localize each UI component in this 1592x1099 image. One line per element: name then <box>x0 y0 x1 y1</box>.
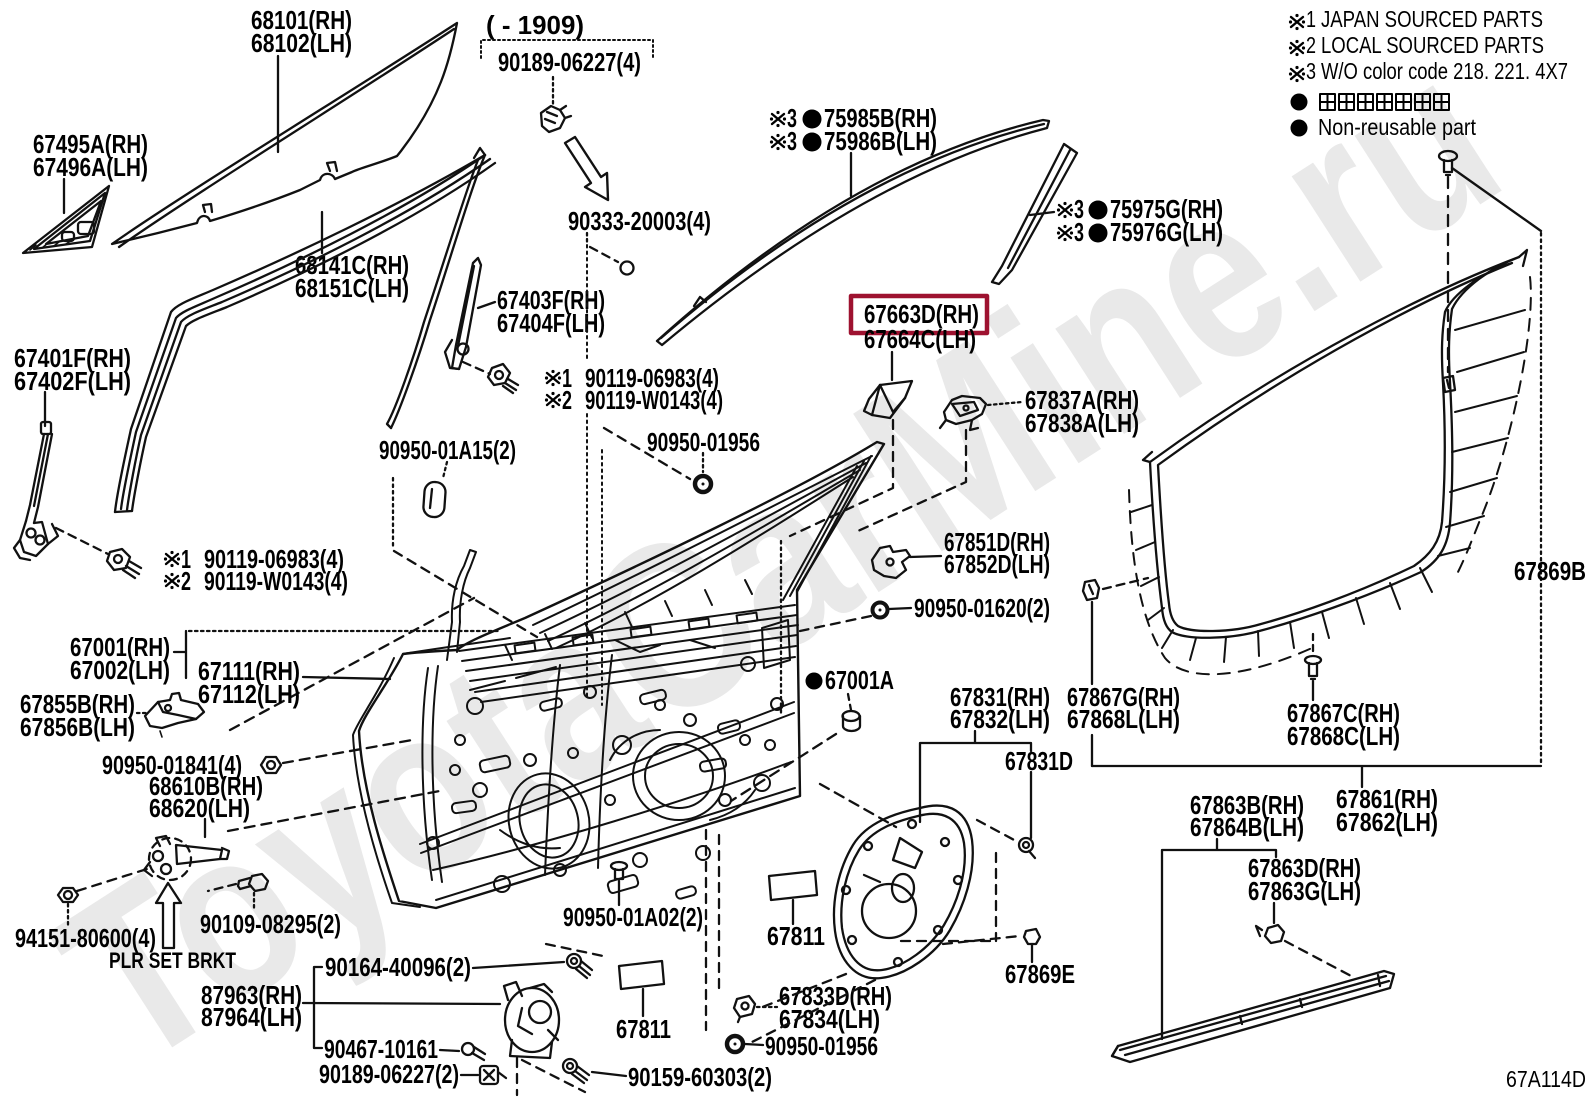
svg-text:90164-40096(2): 90164-40096(2) <box>325 952 471 982</box>
svg-text:67664C(LH): 67664C(LH) <box>864 324 976 354</box>
svg-text:3: 3 <box>787 126 797 156</box>
svg-text:87964(LH): 87964(LH) <box>201 1002 302 1032</box>
svg-text:67852D(LH): 67852D(LH) <box>944 549 1050 579</box>
svg-text:67868L(LH): 67868L(LH) <box>1067 704 1180 734</box>
svg-text:68620(LH): 68620(LH) <box>149 793 250 823</box>
svg-text:90950-01956: 90950-01956 <box>765 1031 878 1061</box>
svg-text:W/O color code 218. 221. 4X7: W/O color code 218. 221. 4X7 <box>1321 58 1568 84</box>
svg-text:67864B(LH): 67864B(LH) <box>1190 812 1304 842</box>
svg-text:90119-W0143(4): 90119-W0143(4) <box>204 566 348 596</box>
svg-text:90950-01A15(2): 90950-01A15(2) <box>379 435 516 465</box>
svg-text:90159-60303(2): 90159-60303(2) <box>628 1062 772 1092</box>
svg-text:75986B(LH): 75986B(LH) <box>824 126 937 156</box>
svg-text:67838A(LH): 67838A(LH) <box>1025 408 1139 438</box>
svg-text:68102(LH): 68102(LH) <box>251 28 352 58</box>
svg-text:67863G(LH): 67863G(LH) <box>1248 876 1361 906</box>
svg-text:67834(LH): 67834(LH) <box>779 1004 880 1034</box>
svg-text:67862(LH): 67862(LH) <box>1336 807 1438 837</box>
svg-text:67811: 67811 <box>616 1014 671 1044</box>
svg-text:90109-08295(2): 90109-08295(2) <box>200 909 341 939</box>
svg-text:90119-W0143(4): 90119-W0143(4) <box>585 385 723 415</box>
svg-text:67832(LH): 67832(LH) <box>950 704 1050 734</box>
svg-text:67831D: 67831D <box>1005 746 1073 776</box>
svg-text:67402F(LH): 67402F(LH) <box>14 366 131 396</box>
svg-text:90950-01620(2): 90950-01620(2) <box>914 593 1050 623</box>
svg-text:67811: 67811 <box>767 921 825 951</box>
svg-text:( - 1909): ( - 1909) <box>486 10 584 40</box>
svg-text:Non-reusable part: Non-reusable part <box>1318 114 1477 140</box>
svg-text:67868C(LH): 67868C(LH) <box>1287 721 1400 751</box>
svg-text:90950-01A02(2): 90950-01A02(2) <box>563 902 703 932</box>
svg-text:3: 3 <box>1306 58 1316 84</box>
svg-text:67869E: 67869E <box>1005 959 1075 989</box>
svg-text:90189-06227(2): 90189-06227(2) <box>319 1059 459 1089</box>
svg-text:LOCAL SOURCED PARTS: LOCAL SOURCED PARTS <box>1321 32 1544 58</box>
svg-text:2: 2 <box>181 566 191 596</box>
svg-text:67001A: 67001A <box>825 665 894 695</box>
svg-text:2: 2 <box>562 385 572 415</box>
svg-text:67A114D: 67A114D <box>1506 1066 1586 1092</box>
svg-text:JAPAN SOURCED PARTS: JAPAN SOURCED PARTS <box>1321 6 1543 32</box>
svg-text:67002(LH): 67002(LH) <box>70 655 170 685</box>
svg-text:67112(LH): 67112(LH) <box>198 679 300 709</box>
svg-text:67856B(LH): 67856B(LH) <box>20 712 135 742</box>
svg-text:75976G(LH): 75976G(LH) <box>1110 217 1223 247</box>
svg-text:67869B: 67869B <box>1514 556 1586 586</box>
svg-text:68151C(LH): 68151C(LH) <box>295 273 409 303</box>
svg-text:3: 3 <box>1074 217 1084 247</box>
svg-text:2: 2 <box>1306 32 1316 58</box>
svg-text:67404F(LH): 67404F(LH) <box>497 308 605 338</box>
svg-text:90333-20003(4): 90333-20003(4) <box>568 206 711 236</box>
svg-text:67496A(LH): 67496A(LH) <box>33 152 148 182</box>
svg-text:94151-80600(4): 94151-80600(4) <box>15 923 156 953</box>
svg-text:1: 1 <box>1306 6 1316 32</box>
svg-text:90189-06227(4): 90189-06227(4) <box>498 47 641 77</box>
